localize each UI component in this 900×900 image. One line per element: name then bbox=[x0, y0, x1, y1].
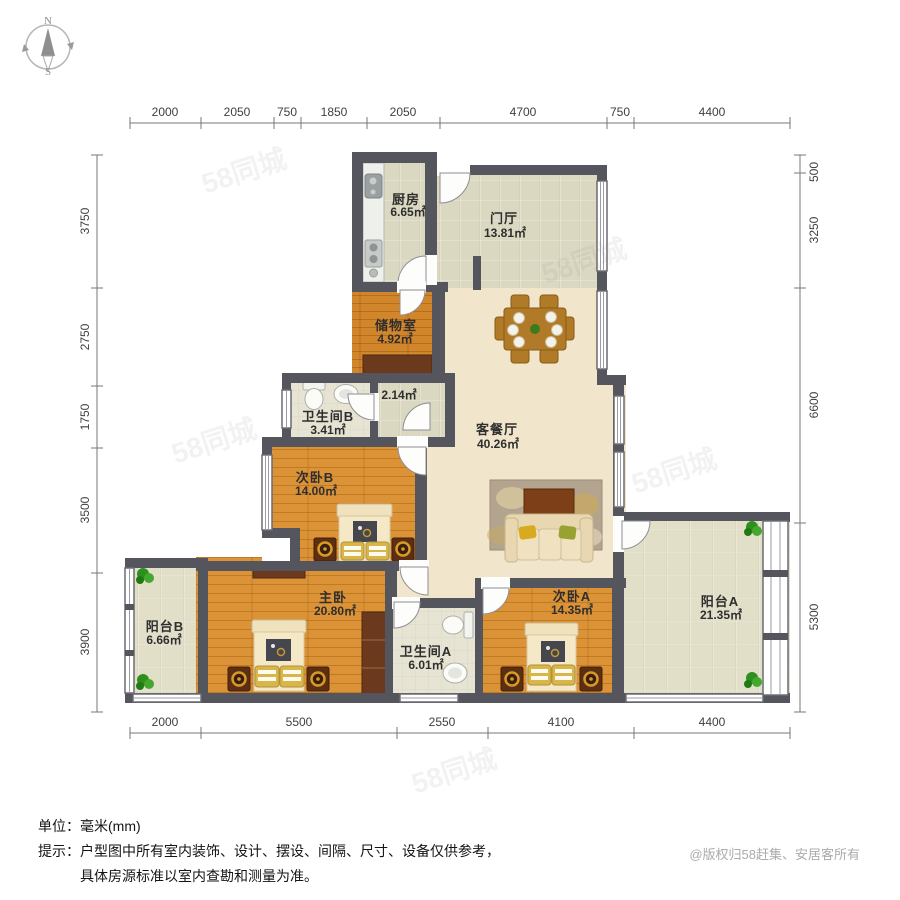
tip-text: 户型图中所有室内装饰、设计、摆设、间隔、尺寸、设备仅供参考， 具体房源标准以室内… bbox=[80, 839, 500, 889]
copyright-text: @版权归58赶集、安居客所有 bbox=[689, 844, 860, 863]
dim-bottom: 4100 bbox=[548, 715, 575, 729]
floorplan-page: 58同城 58同城 58同城 58同城 58同城 N S 2000 2050 7… bbox=[0, 0, 900, 900]
room-area-storage: 4.92㎡ bbox=[377, 330, 412, 347]
dim-top: 4400 bbox=[699, 105, 726, 119]
room-area-bathroom-a: 6.01㎡ bbox=[408, 656, 443, 673]
sofa bbox=[505, 514, 593, 562]
bathroom-a-window bbox=[400, 694, 458, 702]
tip-row: 提示： 户型图中所有室内装饰、设计、摆设、间隔、尺寸、设备仅供参考， 具体房源标… bbox=[38, 839, 500, 889]
room-area-corridor: 2.14㎡ bbox=[381, 386, 416, 403]
compass-south-label: S bbox=[45, 66, 51, 78]
dim-right: 6600 bbox=[807, 392, 821, 419]
compass-north-label: N bbox=[44, 15, 52, 27]
dim-left: 3900 bbox=[78, 629, 92, 656]
dim-bottom: 2000 bbox=[152, 715, 179, 729]
floorplan-drawing bbox=[0, 0, 900, 900]
living-window-lower bbox=[614, 396, 624, 507]
unit-row: 单位： 毫米(mm) bbox=[38, 814, 500, 839]
sofa-pillow-yellow bbox=[518, 525, 537, 540]
dim-top: 4700 bbox=[510, 105, 537, 119]
sofa-pillow-green bbox=[558, 525, 576, 540]
dim-right: 3250 bbox=[807, 217, 821, 244]
dim-top: 2050 bbox=[390, 105, 417, 119]
dim-top: 750 bbox=[277, 105, 297, 119]
dim-bottom: 2550 bbox=[429, 715, 456, 729]
dim-right: 500 bbox=[807, 162, 821, 182]
room-area-balcony-b: 6.66㎡ bbox=[146, 631, 181, 648]
bathroom-b-window bbox=[282, 390, 291, 428]
dim-top: 1850 bbox=[321, 105, 348, 119]
footer-notes: 单位： 毫米(mm) 提示： 户型图中所有室内装饰、设计、摆设、间隔、尺寸、设备… bbox=[38, 814, 500, 890]
master-wardrobe bbox=[362, 612, 386, 697]
kitchen-counter bbox=[363, 163, 384, 282]
room-area-kitchen: 6.65㎡ bbox=[390, 203, 425, 220]
room-area-foyer: 13.81㎡ bbox=[484, 224, 526, 241]
room-area-master: 20.80㎡ bbox=[314, 602, 356, 619]
unit-value: 毫米(mm) bbox=[80, 814, 141, 839]
dim-bottom: 4400 bbox=[699, 715, 726, 729]
tip-label: 提示： bbox=[38, 839, 80, 889]
dim-right: 5300 bbox=[807, 604, 821, 631]
dim-top: 2000 bbox=[152, 105, 179, 119]
compass-needle-north bbox=[41, 28, 55, 56]
compass-icon bbox=[22, 25, 74, 71]
dim-left: 3500 bbox=[78, 497, 92, 524]
toilet-a bbox=[443, 616, 464, 634]
table-plant bbox=[530, 324, 540, 334]
dim-left: 3750 bbox=[78, 208, 92, 235]
tip-line2: 具体房源标准以室内查勘和测量为准。 bbox=[80, 864, 500, 889]
room-area-living: 40.26㎡ bbox=[477, 435, 519, 452]
storage-cabinet bbox=[363, 355, 432, 376]
foyer-window bbox=[597, 181, 607, 271]
room-area-balcony-a: 21.35㎡ bbox=[700, 606, 742, 623]
unit-label: 单位： bbox=[38, 814, 80, 839]
room-area-bathroom-b: 3.41㎡ bbox=[310, 421, 345, 438]
living-window-upper bbox=[597, 291, 607, 369]
dim-left: 2750 bbox=[78, 324, 92, 351]
dim-left: 1750 bbox=[78, 404, 92, 431]
dim-top: 2050 bbox=[224, 105, 251, 119]
room-area-bedroom-b: 14.00㎡ bbox=[295, 482, 337, 499]
dim-bottom: 5500 bbox=[286, 715, 313, 729]
dim-top: 750 bbox=[610, 105, 630, 119]
room-area-bedroom-a: 14.35㎡ bbox=[551, 601, 593, 618]
bedroom-b-window bbox=[262, 455, 272, 530]
tip-line1: 户型图中所有室内装饰、设计、摆设、间隔、尺寸、设备仅供参考， bbox=[80, 839, 500, 864]
